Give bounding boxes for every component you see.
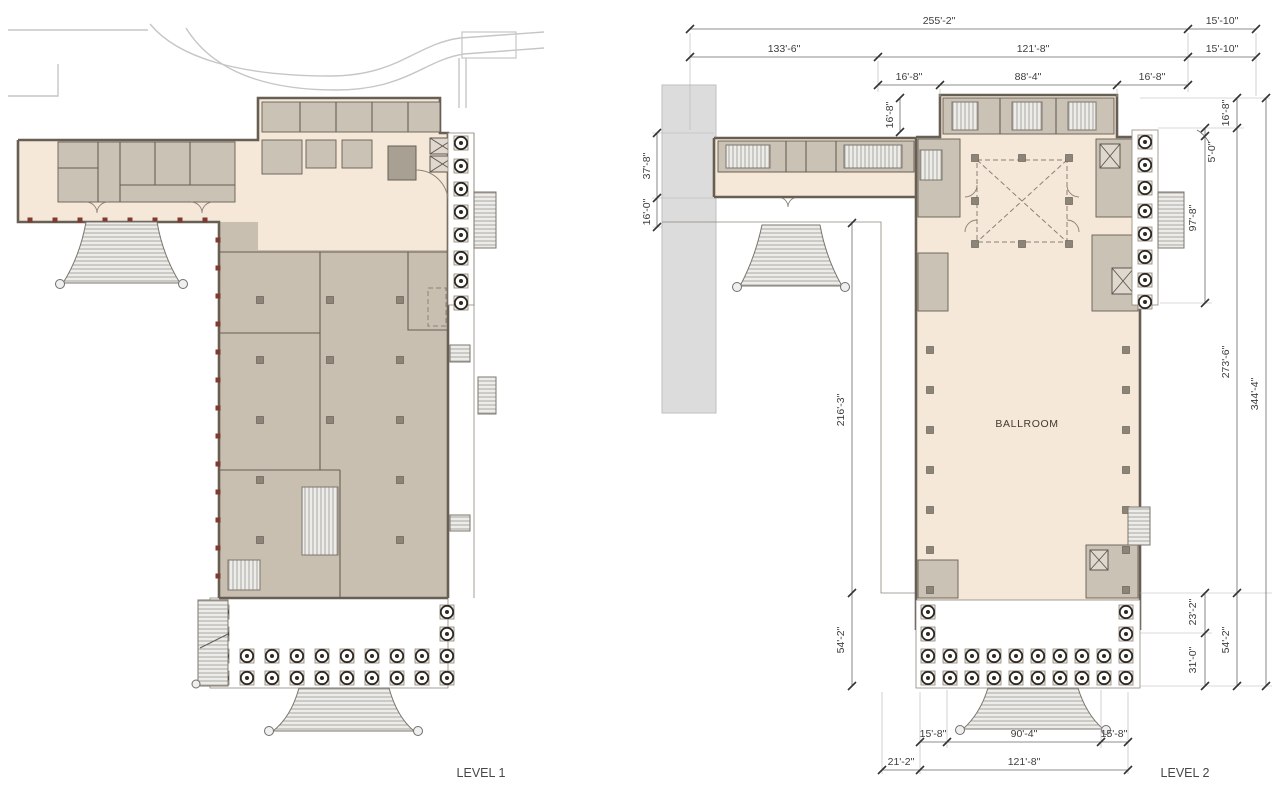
level2-plan: BALLROOM LEVEL 2 [662, 85, 1209, 780]
ballroom-label: BALLROOM [995, 418, 1058, 430]
dim-right-lower-portico: 31'-0" [1187, 646, 1199, 673]
dim-right-top: 16'-8" [1220, 99, 1232, 126]
level2-east-stair [1158, 192, 1184, 248]
dim-right-colonnade: 97'-8" [1187, 204, 1199, 231]
dim-left-portico: 54'-2" [835, 626, 847, 653]
dim-top-right-b: 15'-10" [1206, 43, 1239, 55]
floor-plan-sheet: LEVEL 1 [0, 0, 1280, 792]
level1-label: LEVEL 1 [457, 766, 506, 780]
dim-top-aisle-right: 16'-8" [1139, 71, 1166, 83]
dim-left-main: 216'-3" [835, 393, 847, 426]
level2-portico [916, 600, 1140, 735]
dim-top-right-a: 15'-10" [1206, 15, 1239, 27]
dim-bottom-col-right: 15'-8" [1101, 728, 1128, 740]
dim-bottom-portico: 90'-4" [1011, 728, 1038, 740]
level1-site-roads [8, 24, 544, 108]
dim-bottom-left: 21'-2" [888, 756, 915, 768]
level1-wing-rooms [58, 142, 235, 213]
dim-top-ballroom: 88'-4" [1015, 71, 1042, 83]
dim-right-main: 273'-6" [1220, 345, 1232, 378]
level1-plan: LEVEL 1 [8, 24, 544, 780]
level2-wing [714, 138, 916, 207]
dim-left-wing-depth: 37'-8" [641, 152, 653, 179]
dim-left-terrace: 16'-0" [641, 198, 653, 225]
dim-bottom-col-left: 15'-8" [920, 728, 947, 740]
floor-plan-canvas: LEVEL 1 [0, 0, 1280, 792]
dim-right-five: 5'-0" [1206, 141, 1218, 162]
dim-left-bar: 16'-8" [884, 101, 896, 128]
level2-adjacent-building [662, 85, 716, 413]
dim-top-total: 255'-2" [923, 15, 956, 27]
dim-right-upper-portico: 23'-2" [1187, 598, 1199, 625]
level1-east-colonnade [448, 133, 496, 598]
dim-right-total: 344'-4" [1249, 377, 1261, 410]
dim-bottom-main: 121'-8" [1008, 756, 1041, 768]
level1-east-stair [474, 192, 496, 248]
dim-top-wing: 133'-6" [768, 43, 801, 55]
level2-west-grand-stair [733, 225, 850, 292]
dim-right-portico: 54'-2" [1220, 626, 1232, 653]
level2-main-block [916, 95, 1140, 630]
dim-top-aisle-left: 16'-8" [896, 71, 923, 83]
dim-top-main: 121'-8" [1017, 43, 1050, 55]
level2-label: LEVEL 2 [1161, 766, 1210, 780]
